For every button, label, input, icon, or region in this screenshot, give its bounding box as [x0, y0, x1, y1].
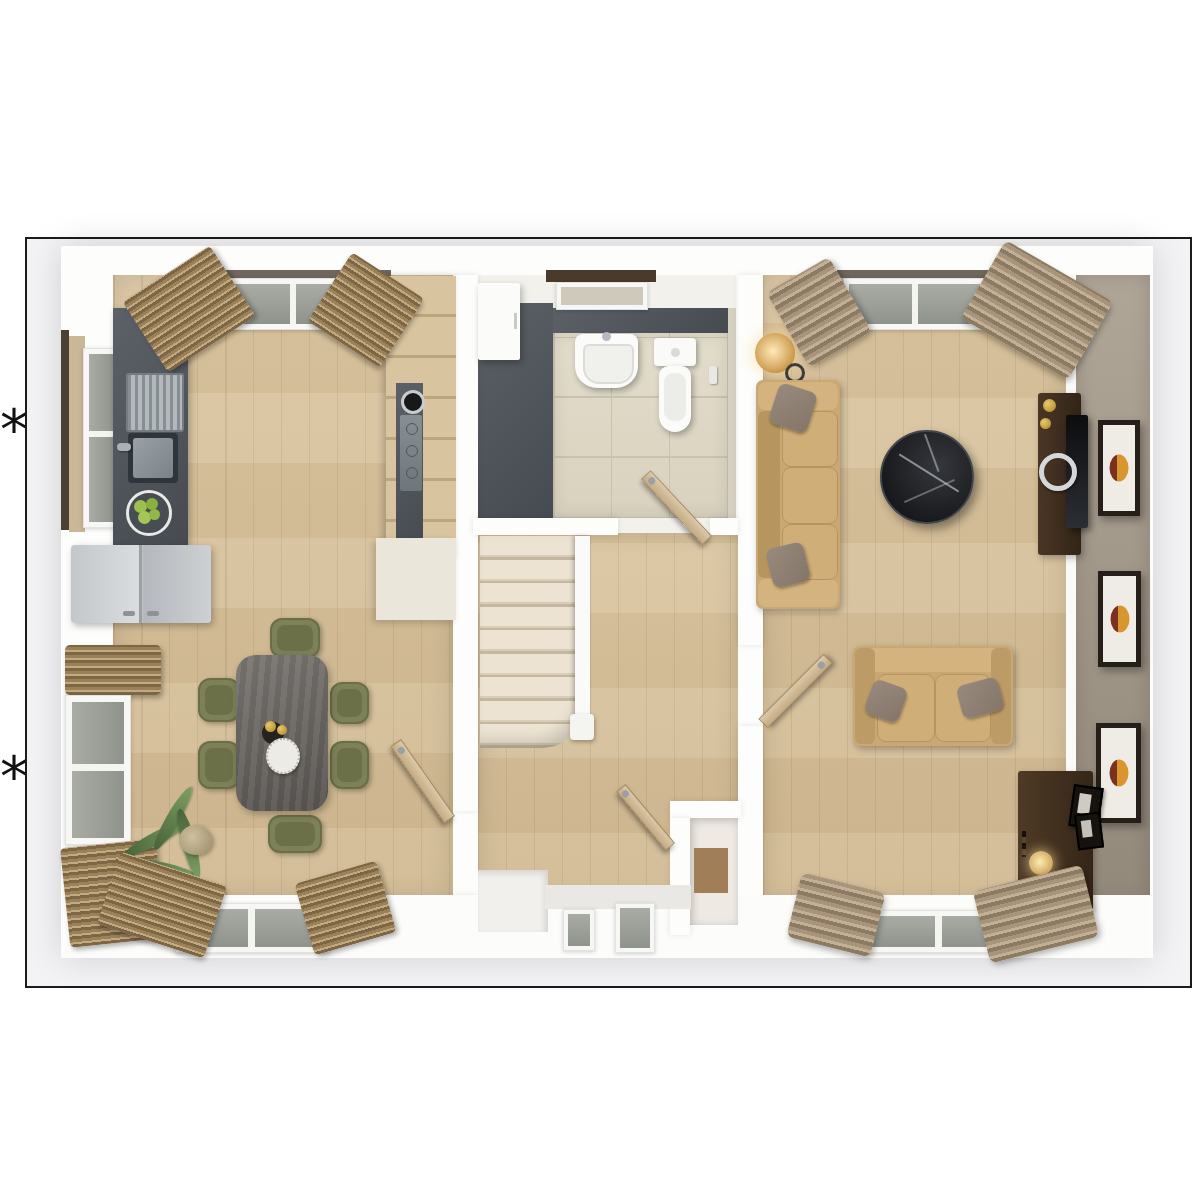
- kitchen-sink-basin: [128, 433, 178, 483]
- marble-vein-2: [904, 479, 955, 503]
- kitchen-side-window-glass: [89, 354, 115, 522]
- palm-plant-pot: [179, 825, 212, 855]
- front-door-glass-left: [568, 914, 590, 946]
- chair-seat: [337, 748, 362, 782]
- chair-seat: [205, 685, 233, 715]
- dining-chair-left-1: [198, 678, 240, 722]
- apple-2: [146, 498, 158, 510]
- wc-right-wall-sliver: [728, 308, 736, 518]
- desk-drawer-handles: [1022, 831, 1026, 857]
- floorplan-canvas: [25, 237, 1188, 984]
- dining-side-window: [65, 695, 131, 845]
- wc-toilet-seat: [664, 373, 686, 421]
- decorative-plate: [266, 738, 300, 774]
- wc-basin-bowl: [583, 344, 634, 384]
- wc-bottom-wall-left: [473, 518, 618, 535]
- kitchen-sink-drainer: [126, 373, 184, 432]
- front-door-glazed-panel-right: [615, 903, 655, 953]
- desk-photo-1: [1077, 793, 1092, 814]
- stair-balustrade: [575, 536, 590, 718]
- wc-toilet-bowl: [659, 366, 691, 432]
- wall-art-frame-1: [1098, 420, 1140, 516]
- wc-window-glass: [561, 287, 643, 305]
- wc-toilet-cistern: [654, 338, 696, 366]
- living-top-window-lintel: [837, 270, 993, 278]
- kitchen-side-window-mullion: [89, 431, 115, 437]
- tv-unit-decor-2: [1040, 418, 1051, 429]
- plan-border-frame: [25, 237, 1192, 988]
- front-door-glass-right: [620, 908, 650, 948]
- fridge-door-seam: [139, 545, 142, 623]
- kitchen-door-handle: [396, 746, 406, 756]
- dining-chair-bottom: [268, 815, 322, 853]
- wine-bottle-cap-2: [277, 725, 287, 735]
- chair-seat: [205, 748, 233, 782]
- dining-chair-right-2: [330, 741, 369, 789]
- wc-basin-tap: [602, 332, 611, 341]
- desk-photo-2: [1081, 820, 1093, 838]
- footnote-asterisk-top: *: [0, 402, 26, 458]
- wall-kitchen-hall-upper: [453, 275, 478, 811]
- dining-chair-top: [270, 618, 320, 658]
- desk-photo-frame-2: [1074, 812, 1104, 851]
- dining-bottom-window-mullion: [248, 909, 255, 947]
- wc-basin: [575, 334, 638, 388]
- hob-burner-2: [406, 445, 418, 457]
- marble-vein-3: [924, 434, 939, 472]
- dining-side-blind-upper: [65, 645, 161, 695]
- wall-hall-living-lower: [738, 726, 763, 903]
- living-bottom-window-mullion: [935, 916, 942, 947]
- hob-burner-1: [406, 423, 418, 435]
- floor-lamp: [755, 333, 795, 373]
- dining-side-window-mullion: [72, 764, 124, 771]
- kitchen-side-window-trim: [61, 330, 69, 530]
- kitchen-sink-basin-inner: [133, 438, 173, 478]
- marble-vein-1: [899, 454, 959, 493]
- tv-stand-ring: [1039, 453, 1077, 491]
- wc-window: [556, 282, 648, 310]
- wall-art-frame-3: [1096, 723, 1141, 823]
- kitchen-corner-unit: [376, 538, 456, 620]
- induction-hob: [400, 415, 422, 491]
- fridge-handle-right: [147, 611, 159, 616]
- dining-chair-right-1: [330, 682, 369, 724]
- wc-toilet-flush-button: [671, 348, 680, 357]
- stair-newel-post: [570, 714, 594, 740]
- living-room-door-handle: [816, 660, 826, 670]
- sofa-armrest-bottom: [758, 579, 838, 607]
- chair-seat: [277, 625, 313, 651]
- dining-chair-left-2: [198, 741, 240, 789]
- sofa-seat-cushion-2: [782, 467, 838, 524]
- wine-bottle-cap-1: [265, 721, 276, 732]
- wall-art-frame-2: [1098, 571, 1141, 667]
- wc-bottom-wall-right: [710, 518, 738, 535]
- closet-left-wall: [670, 818, 690, 935]
- floorplan-page: * *: [0, 0, 1200, 1200]
- closet-top-wall: [670, 801, 741, 818]
- wc-door-handle-plate: [709, 366, 717, 384]
- wall-art-2: [1110, 606, 1129, 633]
- living-top-window-mullion: [912, 284, 918, 324]
- kitchen-faucet: [117, 443, 131, 451]
- wc-cabinet: [478, 283, 520, 360]
- fridge-handle-left: [123, 611, 135, 616]
- wall-art-1: [1110, 455, 1129, 482]
- wc-slate-floor-top: [553, 308, 728, 333]
- closet-door-handle: [620, 789, 630, 799]
- wc-door-handle: [647, 476, 657, 486]
- chair-seat: [337, 689, 362, 717]
- hob-burner-3: [406, 467, 418, 479]
- chair-seat: [275, 822, 315, 846]
- kitchen-top-window-mullion: [290, 284, 296, 324]
- closet-interior-shelf: [694, 848, 728, 893]
- wall-art-3: [1109, 760, 1128, 787]
- apple-4: [149, 509, 160, 520]
- closet-niche: [690, 818, 738, 925]
- small-round-sink: [401, 390, 425, 414]
- front-door-glazed-panel-left: [563, 909, 595, 951]
- loveseat-back-band: [855, 648, 1011, 672]
- fridge-freezer: [71, 545, 211, 623]
- tv-unit-decor-1: [1043, 399, 1056, 412]
- footnote-asterisk-bottom: *: [0, 749, 26, 805]
- wc-cabinet-handle: [514, 313, 517, 329]
- entry-porch-step: [478, 870, 548, 932]
- round-marble-coffee-table: [880, 430, 974, 524]
- wc-window-lintel: [546, 270, 656, 282]
- fruit-bowl: [126, 490, 172, 536]
